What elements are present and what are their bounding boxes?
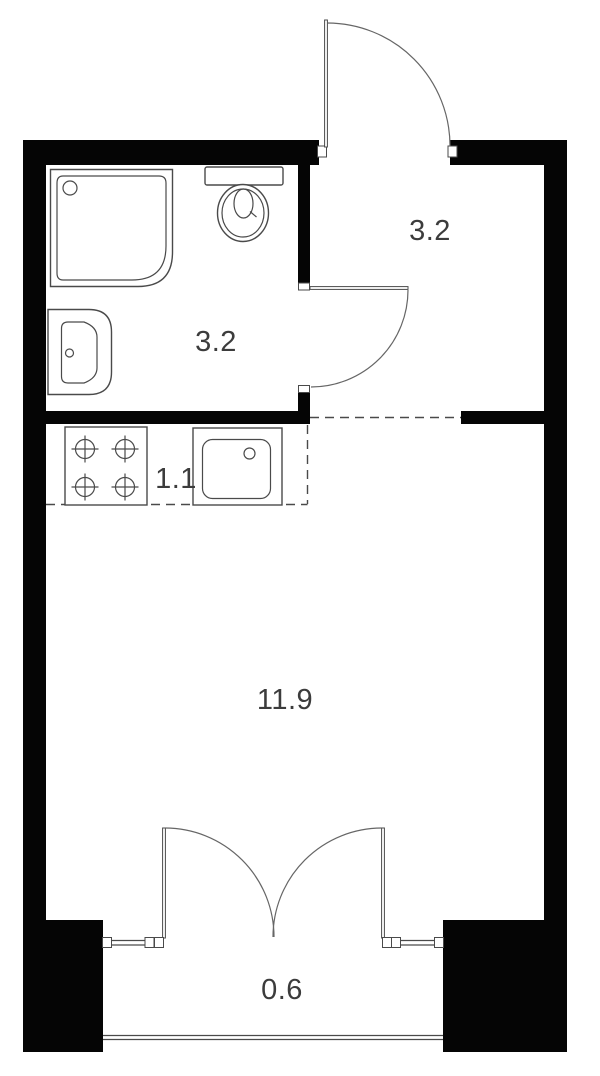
four-burner-stove-icon	[65, 427, 147, 505]
right-balcony-pier	[443, 920, 567, 1052]
entrance-door-swing-icon	[325, 20, 450, 147]
window-frame-block	[383, 938, 392, 948]
top-wall-left	[23, 140, 319, 165]
window-frame-block	[155, 938, 164, 948]
bathroom-partition-bottom	[45, 411, 310, 424]
toilet-bowl-outer	[218, 185, 269, 242]
balcony-door-leaf-right	[382, 828, 385, 938]
window-frame-block	[435, 938, 444, 948]
window-frame-block	[103, 938, 112, 948]
entrance-door-arc	[327, 23, 450, 146]
window-icon-left	[103, 938, 164, 948]
bathroom-partition-vertical	[298, 165, 310, 283]
bathroom-door-swing-icon	[310, 287, 408, 387]
floor-plan: 3.2 3.2 1.1 11.9 0.6	[0, 0, 600, 1076]
kitchen-sink-icon	[193, 428, 282, 505]
kitchen-area-label: 1.1	[155, 463, 197, 495]
floor-plan-drawing: 3.2 3.2 1.1 11.9 0.6	[0, 0, 600, 1076]
bathroom-jamb-bottom	[299, 386, 310, 393]
bathroom-jamb-top	[299, 283, 310, 290]
toilet-tank	[205, 167, 283, 185]
entrance-door-leaf	[325, 20, 328, 147]
balcony-area-label: 0.6	[261, 974, 303, 1006]
balcony-door-arc-left	[165, 828, 274, 937]
balcony-door-leaf-left	[163, 828, 166, 938]
shower-outer	[51, 170, 173, 287]
entrance-jamb-right	[448, 146, 457, 157]
window-frame-block	[145, 938, 154, 948]
bathroom-area-label: 3.2	[195, 326, 237, 358]
bathroom-door-leaf	[310, 287, 408, 290]
washbasin-icon	[48, 310, 112, 395]
hall-partition	[461, 411, 545, 424]
right-wall	[544, 140, 567, 922]
entrance-hall-area-label: 3.2	[409, 215, 451, 247]
toilet-icon	[205, 167, 283, 242]
window-frame-block	[392, 938, 401, 948]
door-jambs	[299, 146, 458, 393]
window-icon-right	[383, 938, 444, 948]
living-room-area-label: 11.9	[257, 684, 313, 716]
bathroom-door-arc	[311, 290, 408, 387]
left-balcony-pier	[23, 920, 103, 1052]
french-balcony-doors-icon	[163, 828, 385, 938]
entrance-jamb-left	[318, 146, 327, 157]
balcony-railing-icon	[103, 1036, 443, 1040]
balcony-door-arc-right	[273, 828, 382, 937]
area-labels: 3.2 3.2 1.1 11.9 0.6	[155, 215, 451, 1006]
left-wall	[23, 140, 46, 922]
shower-cabin-icon	[51, 170, 173, 287]
